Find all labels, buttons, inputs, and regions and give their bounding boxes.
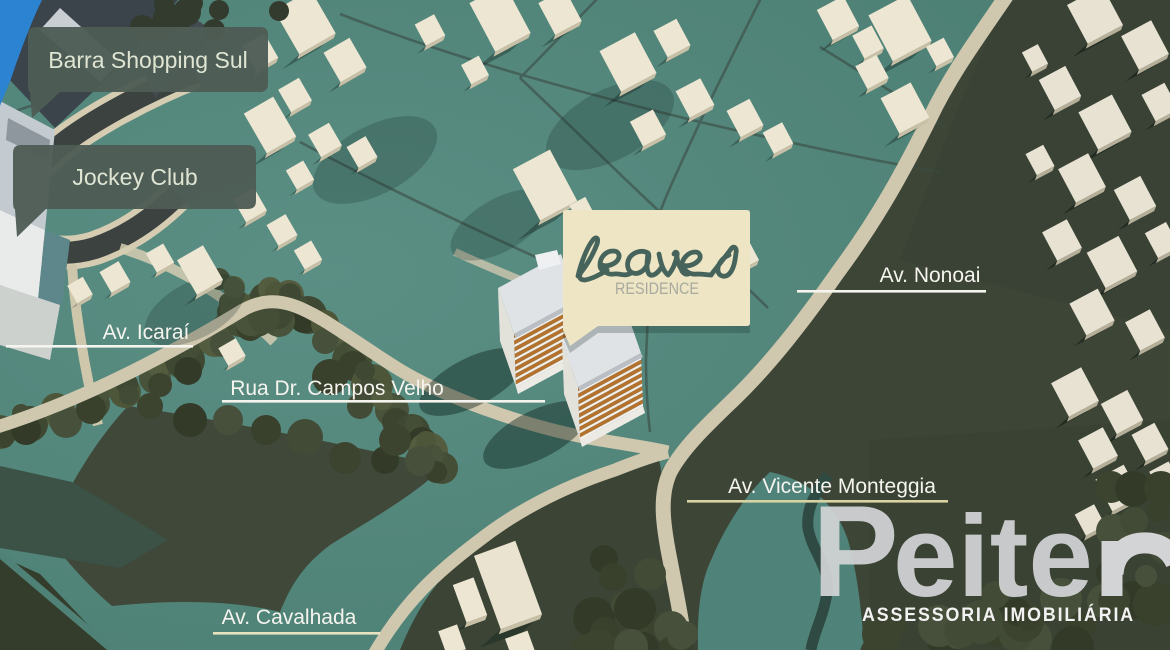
svg-text:ASSESSORIA IMOBILIÁRIA: ASSESSORIA IMOBILIÁRIA (862, 604, 1135, 626)
svg-text:Av. Icaraí: Av. Icaraí (103, 321, 190, 344)
svg-text:RESIDENCE: RESIDENCE (615, 280, 699, 298)
svg-text:P: P (812, 478, 899, 624)
svg-text:Barra Shopping Sul: Barra Shopping Sul (48, 47, 247, 73)
svg-text:Rua Dr. Campos Velho: Rua Dr. Campos Velho (230, 377, 444, 400)
svg-text:Av. Nonoai: Av. Nonoai (880, 264, 981, 287)
svg-text:Jockey Club: Jockey Club (72, 164, 197, 190)
svg-text:eite: eite (893, 491, 1093, 621)
svg-text:Av. Cavalhada: Av. Cavalhada (222, 606, 357, 629)
